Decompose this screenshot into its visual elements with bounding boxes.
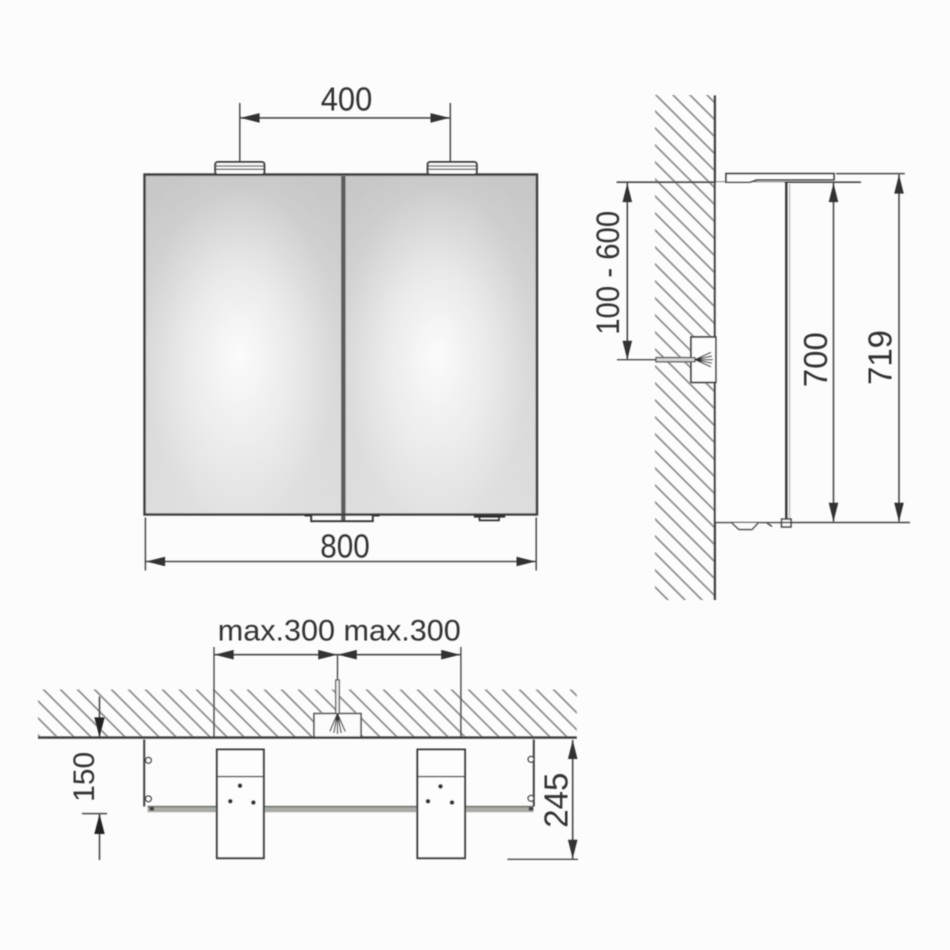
svg-text:719: 719 (861, 330, 898, 385)
svg-text:245: 245 (537, 773, 574, 828)
svg-text:100 - 600: 100 - 600 (590, 211, 626, 335)
svg-text:800: 800 (320, 528, 370, 565)
svg-text:max.300 max.300: max.300 max.300 (218, 614, 461, 647)
svg-text:700: 700 (797, 332, 834, 387)
svg-text:150: 150 (68, 752, 101, 802)
svg-text:400: 400 (321, 81, 373, 118)
